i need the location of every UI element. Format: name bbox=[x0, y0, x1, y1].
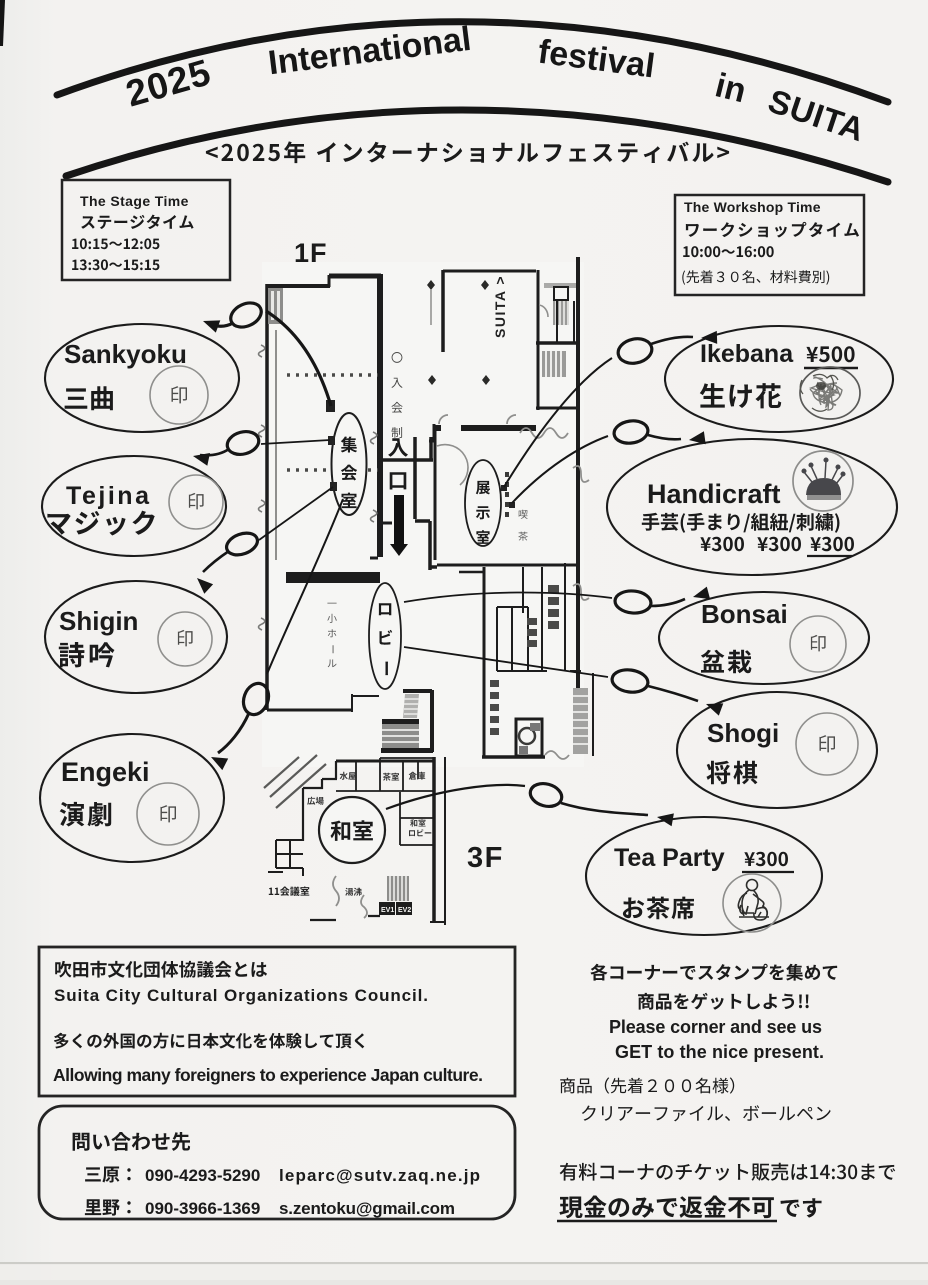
svg-text:The Stage Time: The Stage Time bbox=[80, 193, 189, 209]
svg-text:Shigin: Shigin bbox=[59, 606, 138, 636]
svg-text:SUITA >: SUITA > bbox=[492, 275, 508, 338]
svg-text:090-3966-1369: 090-3966-1369 bbox=[145, 1199, 260, 1218]
svg-text:The Workshop Time: The Workshop Time bbox=[684, 199, 821, 215]
svg-text:Suita City Cultural Organizati: Suita City Cultural Organizations Counci… bbox=[54, 986, 428, 1005]
svg-text:GET to the nice present.: GET to the nice present. bbox=[615, 1042, 824, 1062]
svg-text:Handicraft: Handicraft bbox=[647, 479, 781, 509]
svg-text:leparc@sutv.zaq.ne.jp: leparc@sutv.zaq.ne.jp bbox=[279, 1166, 480, 1185]
svg-text:Ikebana: Ikebana bbox=[700, 340, 794, 368]
svg-text:Tejina: Tejina bbox=[66, 482, 150, 510]
svg-text:EV2: EV2 bbox=[398, 907, 411, 914]
svg-text:Please corner and see us: Please corner and see us bbox=[609, 1017, 822, 1037]
svg-text:Shogi: Shogi bbox=[707, 718, 779, 748]
svg-text:Tea Party: Tea Party bbox=[614, 844, 725, 872]
svg-text:Sankyoku: Sankyoku bbox=[64, 339, 187, 369]
svg-text:Bonsai: Bonsai bbox=[701, 599, 788, 629]
svg-text:EV1: EV1 bbox=[381, 907, 394, 914]
svg-text:3F: 3F bbox=[467, 842, 504, 874]
svg-text:090-4293-5290: 090-4293-5290 bbox=[145, 1166, 260, 1185]
svg-text:s.zentoku@gmail.com: s.zentoku@gmail.com bbox=[279, 1199, 455, 1218]
svg-text:Engeki: Engeki bbox=[61, 757, 150, 787]
svg-text:Allowing many foreigners to ex: Allowing many foreigners to experience J… bbox=[53, 1065, 483, 1085]
